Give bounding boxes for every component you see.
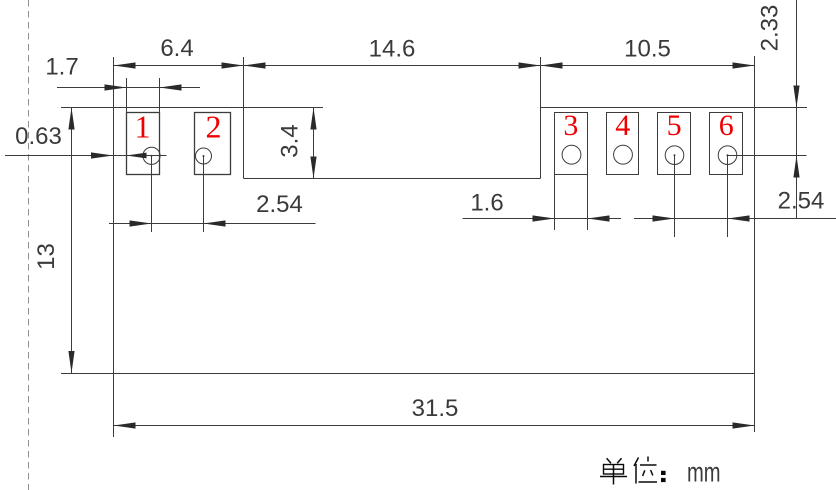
svg-text:31.5: 31.5 (412, 395, 459, 422)
svg-text:3: 3 (563, 109, 578, 142)
svg-text:2: 2 (206, 109, 222, 145)
svg-text:6: 6 (719, 109, 734, 142)
svg-text:mm: mm (687, 457, 721, 488)
svg-text:0.63: 0.63 (15, 123, 62, 150)
svg-text:2.54: 2.54 (778, 188, 825, 215)
svg-text:14.6: 14.6 (369, 36, 416, 63)
svg-text:1: 1 (135, 109, 151, 145)
svg-text:2.33: 2.33 (757, 5, 784, 52)
svg-text:10.5: 10.5 (624, 36, 671, 63)
svg-text:2.54: 2.54 (256, 191, 303, 218)
svg-text:4: 4 (615, 109, 630, 142)
svg-text:1.6: 1.6 (470, 190, 503, 217)
svg-text:6.4: 6.4 (160, 35, 193, 62)
svg-text:5: 5 (667, 109, 682, 142)
svg-text:13: 13 (33, 243, 60, 270)
svg-text:1.7: 1.7 (45, 54, 78, 81)
svg-text:3.4: 3.4 (277, 124, 304, 157)
